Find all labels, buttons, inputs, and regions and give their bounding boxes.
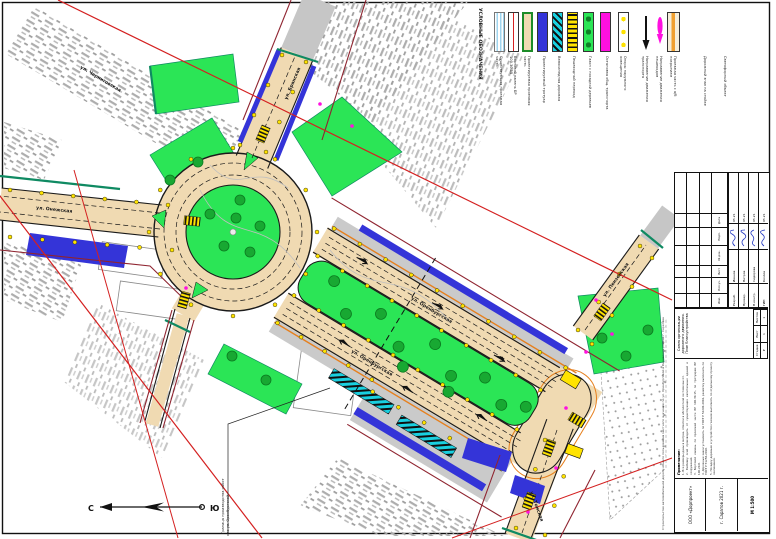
callout-text: по ул. Оренбургской [226, 494, 230, 534]
light-pole-icon [8, 235, 12, 239]
light-pole-icon [264, 150, 268, 154]
legend-label: Существующая проезжая часть [494, 56, 502, 112]
legend-label: Пешеходный переход [571, 56, 575, 112]
north-label: С [88, 504, 94, 513]
tree-icon [643, 325, 653, 335]
legend-swatch-curb [508, 12, 519, 52]
light-pole-icon [40, 191, 44, 195]
light-pole-icon [543, 533, 547, 537]
light-pole-icon [638, 244, 642, 248]
legend-swatch-transit-stop [600, 12, 611, 52]
light-pole-icon [8, 188, 12, 192]
transit-mark-icon [584, 350, 588, 354]
doc-subtitle: План благоустройства [685, 313, 689, 353]
title-block-notes: Примечание: 1. Все размеры даны в метрах… [675, 358, 768, 478]
note: 4. Дорожные знаки установить по ГОСТ Р 5… [702, 362, 709, 475]
light-pole-icon [103, 197, 107, 201]
legend-label: Остановка общ. транспорта [604, 56, 608, 112]
light-pole-icon [552, 504, 556, 508]
drawing-sheet: ул. Черниговская ул. Брянская ул. Онежск… [0, 0, 776, 539]
north-arrow: С Ю [86, 496, 226, 520]
tree-icon [205, 209, 215, 219]
light-pole-icon [40, 238, 44, 242]
transit-mark-icon [610, 332, 614, 336]
legend-title: УСЛОВНЫЕ ОБОЗНАЧЕНИЯ [477, 8, 482, 80]
tree-icon [235, 195, 245, 205]
note: 3. Бортовой камень по проезжей части БР … [694, 362, 701, 475]
legend-swatch-lighting [618, 12, 629, 52]
black-arrow-icon [640, 12, 652, 52]
light-pole-icon [71, 194, 75, 198]
legend-label: Дорожный знак на стойке [702, 56, 706, 112]
light-pole-icon [231, 146, 235, 150]
light-pole-icon [147, 230, 151, 234]
light-pole-icon [252, 113, 256, 117]
note: 2. Разбивку осей производить от существу… [686, 362, 693, 475]
light-pole-icon [231, 314, 235, 318]
transit-mark-icon [554, 466, 558, 470]
light-pole-icon [158, 272, 162, 276]
legend-swatch-sidewalk [537, 12, 548, 52]
note: 5. Посадку деревьев и устройство газонов… [710, 362, 717, 475]
light-pole-icon [514, 526, 518, 530]
light-pole-icon [105, 243, 109, 247]
tree-icon [193, 157, 203, 167]
light-pole-icon [280, 53, 284, 57]
tree-icon [255, 221, 265, 231]
transit-mark-icon [350, 124, 354, 128]
crosswalk [184, 216, 201, 227]
transit-mark-icon [184, 286, 188, 290]
light-pole-icon [73, 240, 77, 244]
light-pole-icon [315, 230, 319, 234]
legend-swatch-lawn [583, 12, 594, 52]
title-block-edge-text: Строительство автомобильной дороги общег… [661, 172, 673, 533]
light-pole-icon [650, 256, 654, 260]
legend-label: Бортовой камень БР 100.30.15 [508, 56, 516, 112]
light-pole-icon [304, 60, 308, 64]
light-pole-icon [543, 438, 547, 442]
light-pole-icon [266, 83, 270, 87]
scale: М 1:500 [738, 479, 768, 531]
magenta-arrow-icon [654, 12, 666, 52]
light-pole-icon [138, 245, 142, 249]
tree-icon [165, 175, 175, 185]
legend-swatch-bike-lane [552, 12, 563, 52]
transit-mark-icon [564, 406, 568, 410]
light-pole-icon [238, 143, 242, 147]
tree-icon [261, 375, 271, 385]
tree-icon [219, 241, 229, 251]
tree-icon [227, 351, 237, 361]
legend-label: Проектируемая проезжая часть [522, 56, 530, 112]
tree-icon [245, 247, 255, 257]
title-block-org: ООО «Дорпроект» г. Саратов 2021 г. М 1:5… [675, 478, 768, 531]
legend-label: Направление движения пешеходов [654, 56, 662, 112]
transit-mark-icon [318, 102, 322, 106]
tree-icon [597, 333, 607, 343]
light-pole-icon [273, 157, 277, 161]
legend-label: Направление движения транспорта [640, 56, 648, 112]
light-pole-icon [273, 303, 277, 307]
legend-label: Проезжая часть с а/б покрытием [668, 56, 676, 112]
south-label: Ю [210, 504, 219, 513]
org-name: ООО «Дорпроект» [675, 479, 706, 531]
light-pole-icon [533, 467, 537, 471]
tree-icon [621, 351, 631, 361]
light-pole-icon [576, 328, 580, 332]
title-block: ООО «Дорпроект» г. Саратов 2021 г. М 1:5… [674, 172, 770, 533]
legend-label: Опоры наружного освещения [618, 56, 626, 112]
light-pole-icon [304, 188, 308, 192]
light-pole-icon [304, 272, 308, 276]
stage-table: СтадияЛистЛистов Р11 [753, 309, 768, 358]
light-pole-icon [166, 203, 170, 207]
light-pole-icon [277, 120, 281, 124]
transit-mark-icon [594, 298, 598, 302]
title-block-signatures: Изм.Кол.уч. Лист№ док. Подп.Дата Разраб.… [675, 173, 768, 308]
light-pole-icon [590, 342, 594, 346]
tree-icon [231, 213, 241, 223]
legend: УСЛОВНЫЕ ОБОЗНАЧЕНИЯ Существующая проезж… [478, 2, 758, 120]
light-pole-icon [562, 474, 566, 478]
doc-title: Схема организации дорожного движения. [677, 313, 685, 353]
city-year: г. Саратов 2021 г. [706, 479, 737, 531]
legend-label: Светофорный объект [722, 56, 726, 112]
legend-swatch-new-road [522, 12, 533, 52]
light-pole-icon [170, 248, 174, 252]
light-pole-icon [189, 157, 193, 161]
legend-label: Газон с посадкой деревьев [587, 56, 591, 112]
legend-swatch-existing-road [494, 12, 505, 52]
legend-swatch-asphalt [667, 12, 680, 52]
light-pole-icon [630, 285, 634, 289]
light-pole-icon [158, 188, 162, 192]
legend-label: Велосипедная дорожка [556, 56, 560, 112]
legend-label: Проектируемый тротуар [541, 56, 545, 112]
light-pole-icon [189, 303, 193, 307]
legend-swatch-crosswalk [567, 12, 578, 52]
light-pole-icon [610, 313, 614, 317]
title-block-doc: Схема организации дорожного движения. Пл… [675, 308, 768, 358]
light-pole-icon [134, 200, 138, 204]
